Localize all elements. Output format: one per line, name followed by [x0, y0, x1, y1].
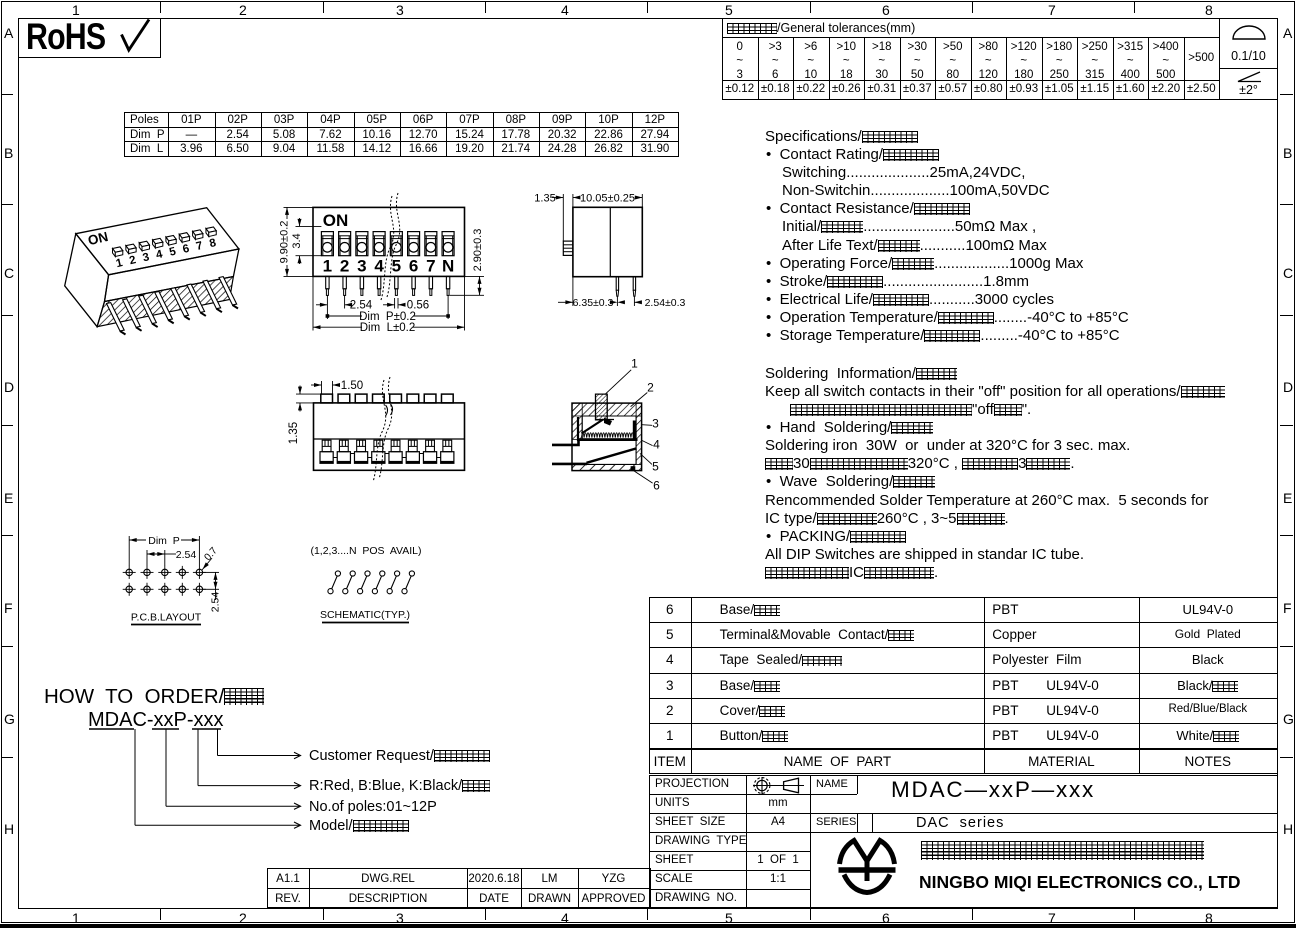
svg-text:SCHEMATIC(TYP.): SCHEMATIC(TYP.) [320, 609, 410, 621]
svg-text:5: 5 [392, 257, 401, 276]
svg-text:3: 3 [652, 417, 659, 431]
svg-text:N: N [442, 257, 454, 276]
svg-text:6: 6 [653, 479, 660, 493]
svg-text:2.54±0.3: 2.54±0.3 [645, 297, 686, 309]
svg-text:1: 1 [323, 257, 332, 276]
svg-text:3.4: 3.4 [291, 233, 303, 248]
svg-text:ON: ON [86, 229, 109, 248]
svg-text:7: 7 [426, 257, 435, 276]
svg-text:9.90±0.2: 9.90±0.2 [279, 221, 291, 264]
svg-text:Dim P: Dim P [148, 535, 180, 547]
svg-text:ON: ON [323, 211, 349, 230]
svg-text:8: 8 [208, 237, 218, 250]
svg-text:10.05±0.25: 10.05±0.25 [580, 193, 635, 205]
svg-text:3: 3 [142, 251, 151, 264]
svg-text:4: 4 [374, 257, 384, 276]
svg-text:5: 5 [168, 245, 178, 258]
svg-text:2.54: 2.54 [350, 300, 373, 312]
svg-text:0.56: 0.56 [407, 300, 429, 312]
svg-text:6.35±0.3: 6.35±0.3 [573, 297, 614, 309]
svg-text:6: 6 [182, 243, 191, 256]
svg-text:3: 3 [357, 257, 366, 276]
svg-text:1.50: 1.50 [341, 380, 363, 392]
svg-text:1: 1 [631, 357, 638, 371]
svg-text:2.54: 2.54 [176, 549, 197, 561]
svg-text:1.35: 1.35 [534, 193, 555, 205]
svg-text:Dim L±0.2: Dim L±0.2 [360, 322, 416, 334]
svg-text:2.54: 2.54 [210, 592, 222, 613]
svg-text:7: 7 [195, 240, 204, 253]
svg-text:6: 6 [409, 257, 418, 276]
svg-text:4: 4 [155, 248, 165, 261]
svg-text:2.90±0.3: 2.90±0.3 [472, 229, 484, 272]
svg-text:1.35: 1.35 [288, 422, 300, 444]
svg-text:(1,2,3....N POS AVAIL): (1,2,3....N POS AVAIL) [310, 545, 421, 557]
svg-text:Dim P±0.2: Dim P±0.2 [359, 311, 416, 323]
svg-text:1: 1 [115, 257, 125, 270]
svg-text:P.C.B.LAYOUT: P.C.B.LAYOUT [131, 612, 202, 624]
svg-text:2: 2 [340, 257, 349, 276]
svg-text:5: 5 [652, 460, 659, 474]
svg-text:4: 4 [653, 438, 660, 452]
svg-text:2: 2 [647, 381, 654, 395]
svg-text:0.7: 0.7 [202, 545, 220, 563]
svg-text:2: 2 [128, 254, 137, 267]
